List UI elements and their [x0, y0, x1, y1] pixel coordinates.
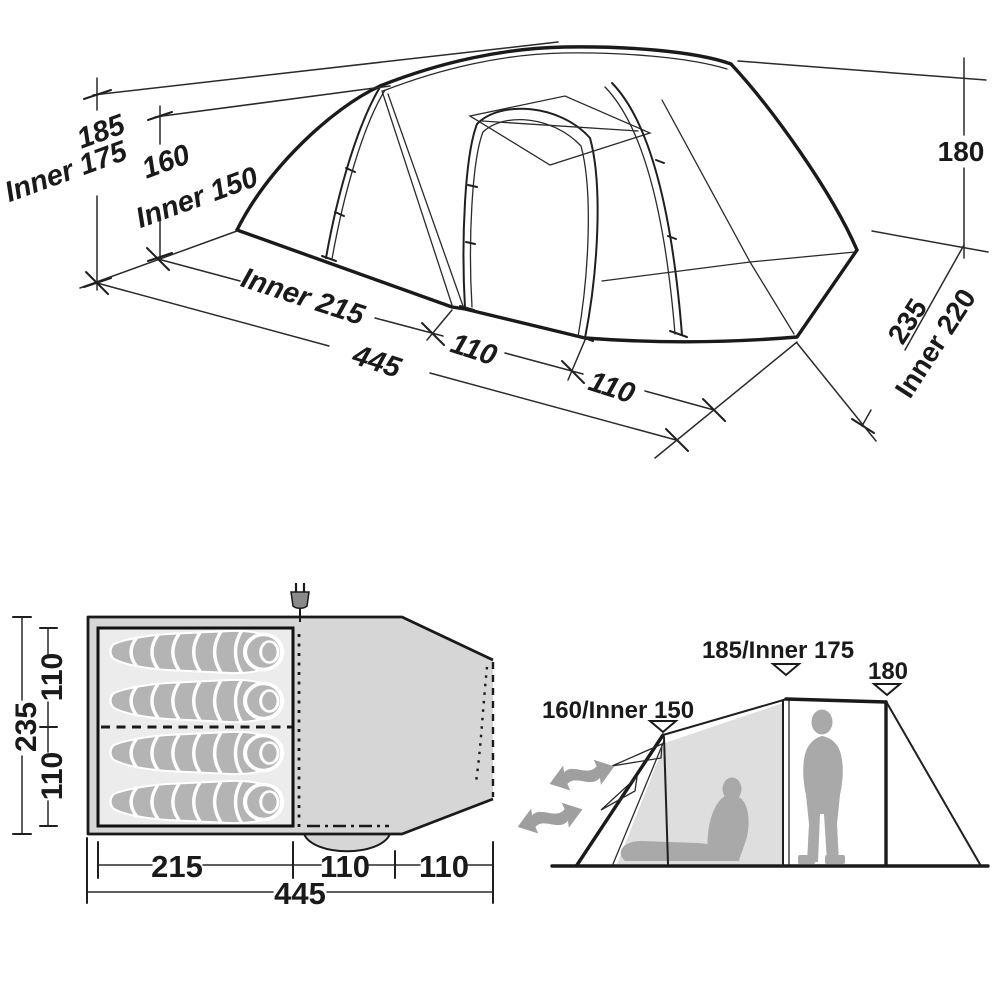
fp-dim-length-total: 445 — [274, 876, 326, 911]
pointer-triangle-icon — [874, 684, 900, 695]
diagram-canvas: 185 Inner 175 160 Inner 150 Inner 215 11… — [0, 0, 1000, 1000]
perspective-view: 185 Inner 175 160 Inner 150 Inner 215 11… — [1, 42, 988, 458]
floor-plan: 235 110 110 215 110 110 445 — [10, 583, 493, 911]
pointer-triangle-icon — [650, 721, 676, 732]
standing-person-silhouette — [798, 710, 845, 865]
dimension-lines-3d — [80, 42, 988, 458]
dim-label-height-front: 160 — [138, 139, 194, 186]
dim-label-length-inner: Inner 215 — [237, 262, 369, 332]
fp-dim-berth-top: 110 — [36, 653, 69, 701]
fp-dim-length-front: 110 — [419, 849, 469, 884]
dim-label-length-mid: 110 — [447, 328, 501, 373]
dim-label-length-total: 445 — [348, 339, 406, 385]
vent-flap-lower — [601, 777, 637, 810]
fp-dim-length-mid: 110 — [320, 849, 370, 884]
sv-label-front-height: 160/Inner 150 — [542, 697, 694, 724]
side-elevation: 160/Inner 150 185/Inner 175 180 — [514, 637, 988, 866]
fp-dim-width-total: 235 — [10, 702, 43, 752]
sleeping-bag — [110, 732, 283, 774]
sv-label-main-height: 185/Inner 175 — [702, 637, 854, 664]
pointer-triangle-icon — [773, 664, 799, 675]
ventilation-arrow-icon — [546, 752, 618, 798]
ventilation-arrow-icon — [514, 795, 586, 841]
inner-wall-panel — [617, 703, 783, 864]
fp-dim-length-inner: 215 — [151, 849, 203, 884]
tent-dimensions-diagram: 185 Inner 175 160 Inner 150 Inner 215 11… — [0, 0, 1000, 1000]
sv-label-rear-height: 180 — [868, 658, 908, 685]
dim-label-height-rear: 180 — [938, 136, 985, 167]
sleeping-bag — [110, 631, 283, 673]
dim-label-length-front: 110 — [585, 366, 639, 411]
sleeping-bag — [110, 680, 283, 722]
sleeping-bag — [110, 781, 283, 823]
dim-label-height-main-inner: Inner 175 — [1, 135, 132, 209]
fp-dim-berth-bottom: 110 — [36, 752, 69, 800]
